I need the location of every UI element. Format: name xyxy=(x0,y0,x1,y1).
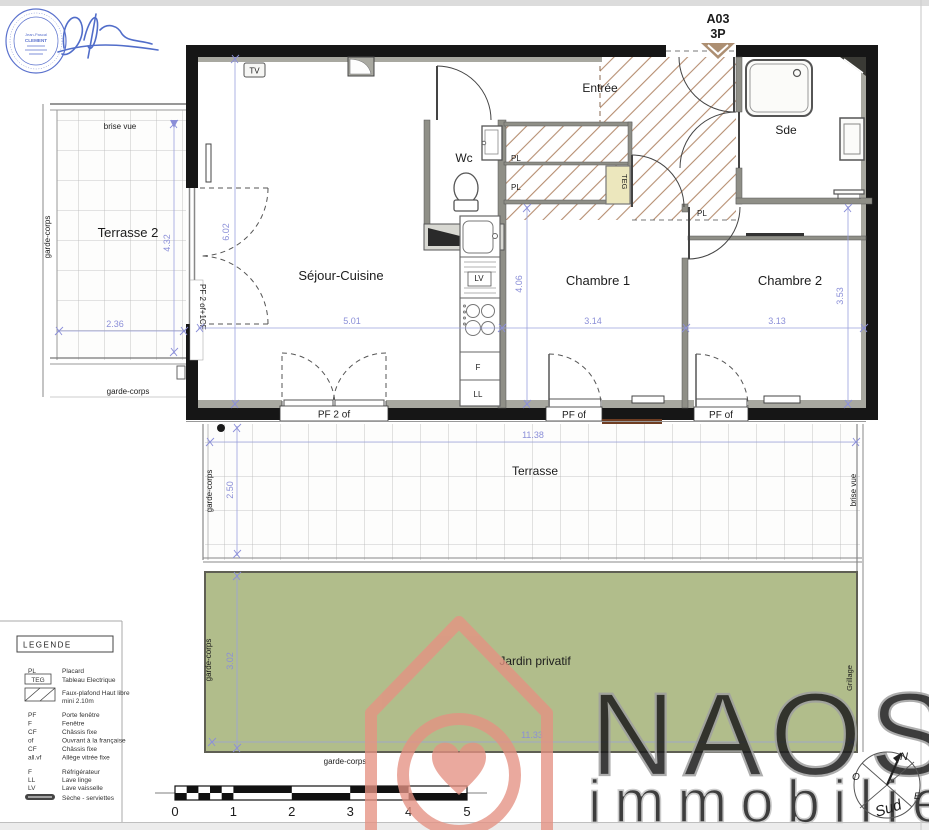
architect-stamp: Jean-Pascal CLEMENT xyxy=(6,9,158,73)
scale-tick: 2 xyxy=(288,804,295,819)
teg-label: TEG xyxy=(620,174,629,190)
compass-east: E xyxy=(914,791,921,801)
room-label-chambre1: Chambre 1 xyxy=(566,273,630,288)
legend-label: Sèche - serviettes xyxy=(62,795,115,802)
garde-corps-label-jardin-bottom: garde-corps xyxy=(324,757,367,766)
faux-plafond-symbol xyxy=(25,688,55,701)
legend-title: LEGENDE xyxy=(23,641,72,650)
floor-plan-sheet: brise vue garde-corps Terrasse 2 garde-c… xyxy=(0,0,929,830)
signature xyxy=(58,14,158,58)
seche-serviettes-symbol xyxy=(25,794,55,800)
chambre2-window-label: PF of xyxy=(709,410,733,421)
room-label-sde: Sde xyxy=(775,123,797,137)
closet-rod xyxy=(746,233,804,236)
towel-dryer xyxy=(834,190,864,194)
legend-label: Lave linge xyxy=(62,777,92,784)
legend-abbr: of xyxy=(28,738,34,745)
dim-jardin-depth: 3.02 xyxy=(225,652,235,670)
chimney-duct xyxy=(348,57,374,76)
tv-label: TV xyxy=(249,67,260,76)
legend-label: Ouvrant à la française xyxy=(62,738,126,745)
terrace-post xyxy=(177,366,185,379)
room-label-terrasse2: Terrasse 2 xyxy=(98,225,159,240)
dim-chambre1-width: 3.14 xyxy=(584,316,602,326)
unit-number: A03 xyxy=(707,12,730,26)
scale-tick: 5 xyxy=(463,804,470,819)
legend-label: Lave vaisselle xyxy=(62,785,103,792)
left-window-label: PF 2 of+1CF xyxy=(198,284,207,330)
dim-sejour-height: 6.02 xyxy=(221,223,231,241)
unit-type: 3P xyxy=(710,27,725,41)
scale-tick: 1 xyxy=(230,804,237,819)
dim-kitchen-height: 4.06 xyxy=(514,275,524,293)
room-label-terrasse: Terrasse xyxy=(512,464,558,478)
legend-label: Châssis fixe xyxy=(62,729,97,736)
legend-abbr: TEG xyxy=(31,677,44,684)
toilet-bowl xyxy=(454,173,478,203)
room-label-sejour: Séjour-Cuisine xyxy=(298,268,383,283)
shower-drain xyxy=(794,70,801,77)
toilet-tank xyxy=(454,200,478,211)
legend-panel: LEGENDE PL Placard TEG Tableau Electriqu… xyxy=(17,636,130,802)
placard-label-3: PL xyxy=(697,209,707,218)
legend-abbr: PF xyxy=(28,712,36,719)
scale-bar: 0 1 2 3 4 5 xyxy=(155,786,487,819)
legend-label: Châssis fixe xyxy=(62,746,97,753)
legend-label: Allège vitrée fixe xyxy=(62,755,110,762)
dim-terrasse-width: 11.38 xyxy=(522,430,544,440)
faucet xyxy=(493,234,498,239)
kitchen-sink xyxy=(463,221,493,253)
compass-west: O xyxy=(852,772,860,783)
legend-label: Porte fenêtre xyxy=(62,712,100,719)
room-label-entree: Entrée xyxy=(582,81,618,95)
dim-jardin-width: 11.33 xyxy=(521,730,543,740)
legend-abbr: F xyxy=(28,721,32,728)
dim-sejour-width: 5.01 xyxy=(343,316,361,326)
sde-corner-shelf xyxy=(840,57,866,76)
stamp-name: Jean-Pascal xyxy=(25,32,47,37)
dim-terrasse2-height: 4.32 xyxy=(162,234,172,252)
dishwasher-label: LV xyxy=(474,274,484,283)
tv-marker: TV xyxy=(244,63,265,77)
drain xyxy=(217,424,225,432)
legend-abbr: CF xyxy=(28,746,37,753)
garde-corps-label-t2-left: garde-corps xyxy=(43,216,52,259)
placard-label-1: PL xyxy=(511,154,521,163)
washer-label: LL xyxy=(474,390,483,399)
room-label-jardin: Jardin privatif xyxy=(499,654,571,668)
dim-terrasse2-width: 2.36 xyxy=(106,319,124,329)
legend-label: mini 2.10m xyxy=(62,698,94,705)
legend-label: Faux-plafond Haut libre xyxy=(62,690,130,697)
sde-fixtures xyxy=(746,60,864,199)
garde-corps-label-terrasse: garde-corps xyxy=(205,470,214,513)
room-label-chambre2: Chambre 2 xyxy=(758,273,822,288)
legend-abbr: LL xyxy=(28,777,36,784)
kitchen-column xyxy=(460,216,500,406)
brise-vue-label-top: brise vue xyxy=(104,122,137,131)
legend-label: Tableau Electrique xyxy=(62,677,116,684)
dim-chambre2-height: 3.53 xyxy=(835,287,845,305)
scale-tick: 0 xyxy=(171,804,178,819)
scale-tick: 3 xyxy=(347,804,354,819)
room-label-wc: Wc xyxy=(455,151,472,165)
legend-label: Fenêtre xyxy=(62,721,85,728)
dim-chambre2-width: 3.13 xyxy=(768,316,786,326)
chambre1-window-label: PF of xyxy=(562,410,586,421)
brise-vue-label-right: brise vue xyxy=(849,473,858,506)
legend-label: Réfrigérateur xyxy=(62,769,101,776)
legend-abbr: CF xyxy=(28,729,37,736)
placard-label-2: PL xyxy=(511,183,521,192)
sejour-window-label: PF 2 of xyxy=(318,410,350,421)
legend-label: Placard xyxy=(62,668,84,675)
stamp-surname: CLEMENT xyxy=(25,38,47,43)
garde-corps-label-t2-bottom: garde-corps xyxy=(107,387,150,396)
unit-header: A03 3P xyxy=(701,12,735,59)
garde-corps-label-jardin-left: garde-corps xyxy=(204,639,213,682)
legend-abbr: LV xyxy=(28,785,36,792)
floor-plan-drawing: brise vue garde-corps Terrasse 2 garde-c… xyxy=(0,0,929,830)
dim-terrasse-depth: 2.50 xyxy=(225,481,235,499)
compass-north: N xyxy=(900,751,908,763)
legend-abbr: all.vf xyxy=(28,755,42,762)
wc-fixtures xyxy=(454,126,502,211)
teg-box: TEG xyxy=(606,166,630,204)
fridge-label: F xyxy=(476,363,481,372)
legend-abbr: F xyxy=(28,769,32,776)
